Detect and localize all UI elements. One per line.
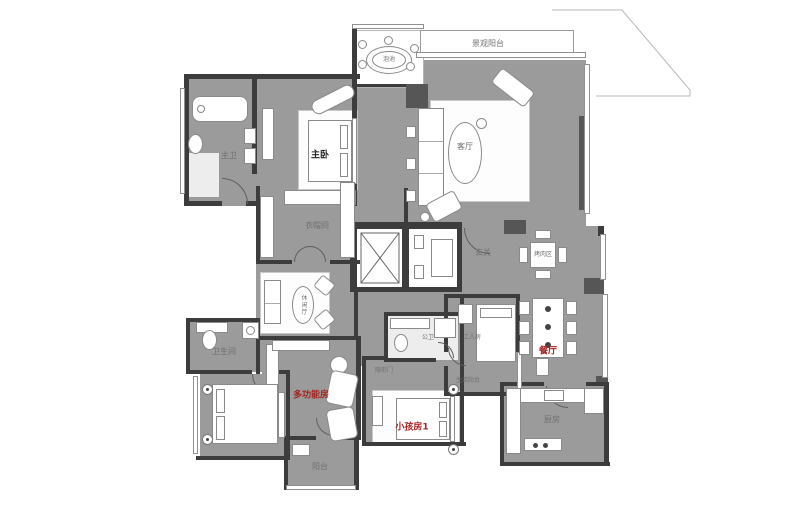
room-label-kitchen: 厨房	[544, 416, 560, 424]
shelf	[272, 340, 330, 351]
kitchen-island	[524, 438, 562, 451]
floor-plan: 景观阳台 泡池 客厅 主卧 主卫 衣帽间 玄关 烤肉区 餐厅 厨房 休闲厅 卫生…	[0, 0, 800, 512]
bbq-chair	[558, 247, 567, 263]
wall-segment	[384, 312, 464, 316]
room-label-guest-bath: 公卫	[422, 335, 434, 341]
wall-pier	[504, 220, 526, 234]
dining-chair	[566, 301, 577, 315]
window-living-top	[416, 52, 586, 58]
room-label-master-bath: 主卫	[221, 152, 237, 160]
wall-lamp	[448, 444, 459, 455]
window-bedroom2-left	[193, 376, 198, 454]
wall-segment	[402, 222, 407, 292]
dining-chair	[519, 301, 530, 315]
serving-cart	[536, 358, 549, 376]
stair-shaft	[407, 227, 459, 289]
label-hidden-door: 隐形门	[375, 368, 393, 374]
kids-desk	[372, 396, 383, 426]
wall-pier	[584, 278, 604, 294]
shower-guest	[434, 318, 456, 338]
wall-segment	[354, 436, 359, 490]
pillow	[216, 416, 225, 440]
room-label-utility-balcony: 生活阳台	[456, 378, 480, 384]
bbq-chair	[535, 270, 551, 279]
room-label-bbq: 烤肉区	[534, 252, 552, 258]
spa-stool	[384, 36, 393, 45]
wall-segment	[457, 222, 462, 292]
room-label-bathroom: 卫生间	[212, 348, 236, 356]
wall-lamp	[448, 384, 459, 395]
room-label-balcony: 阳台	[312, 463, 328, 471]
worker-cabinet	[458, 304, 473, 324]
side-table	[406, 190, 416, 202]
wall-segment	[184, 74, 360, 79]
room-label-dining: 餐厅	[539, 348, 557, 357]
nightstand	[244, 128, 256, 144]
bbq-chair	[519, 247, 528, 263]
cooktop-burner	[533, 443, 538, 448]
dining-chair	[566, 321, 577, 335]
bbq-chair	[535, 230, 551, 239]
side-ball-table	[476, 118, 487, 129]
bathtub	[192, 96, 248, 122]
wall-segment	[288, 436, 316, 440]
daybed	[325, 406, 358, 442]
elevator-shaft	[355, 227, 405, 289]
window-living-right	[584, 64, 590, 214]
window-dining-right	[602, 294, 608, 378]
wall-lamp	[202, 434, 213, 445]
room-label-master-bedroom: 主卧	[311, 152, 329, 161]
wall-segment	[188, 370, 252, 374]
bathtub-drain	[197, 105, 205, 113]
dining-chair	[519, 341, 530, 355]
bedroom2-bed	[212, 384, 278, 444]
wardrobe	[260, 196, 274, 258]
nightstand	[244, 148, 256, 164]
cooktop-burner	[543, 443, 548, 448]
shaft-panel	[431, 239, 453, 277]
wall-segment	[362, 356, 366, 446]
spa-stool	[410, 44, 419, 53]
toilet-master	[188, 134, 203, 154]
table-setting	[545, 324, 551, 330]
wall-segment	[604, 382, 609, 466]
room-label-living: 客厅	[457, 143, 473, 151]
wall-pier	[406, 84, 428, 108]
window-spa-top	[352, 24, 424, 29]
sofa	[418, 108, 444, 206]
washer	[242, 322, 259, 339]
room-label-kids-room-1: 小孩房1	[395, 424, 428, 433]
pillow	[439, 402, 447, 418]
toilet-guest	[394, 334, 408, 352]
spa-stool	[358, 60, 367, 69]
wall-segment	[184, 201, 222, 206]
side-table	[406, 158, 416, 170]
room-label-foyer: 玄关	[475, 249, 491, 257]
wall-segment	[384, 358, 436, 362]
wall-segment	[502, 462, 610, 466]
bench	[262, 108, 274, 160]
wall-segment	[258, 260, 292, 264]
wall-segment	[196, 456, 288, 460]
wall-segment	[186, 318, 190, 374]
wall-segment	[500, 382, 544, 386]
pillow	[340, 125, 348, 149]
window-balcony-bottom	[286, 485, 356, 490]
wall-segment	[356, 336, 361, 440]
leisure-sofa	[264, 280, 281, 324]
headboard	[352, 118, 357, 184]
kitchen-counter-left	[506, 388, 521, 454]
kitchen-tall-cabinet	[584, 388, 604, 414]
wall-lamp	[202, 384, 213, 395]
bench	[278, 392, 285, 438]
room-label-multi-room: 多功能房	[293, 392, 329, 401]
kids-headboard	[450, 396, 455, 442]
table-setting	[545, 306, 551, 312]
shaft-panel	[414, 265, 424, 279]
wall-segment	[366, 356, 388, 360]
elevator-x-icon	[357, 229, 403, 287]
vanity	[390, 318, 430, 329]
wall-segment	[330, 260, 360, 264]
wall-segment	[384, 312, 388, 362]
dining-chair	[519, 321, 530, 335]
pillow	[480, 308, 512, 318]
worker-bed	[476, 304, 516, 362]
coffee-table	[448, 122, 482, 184]
pillow	[216, 389, 225, 413]
wall-segment	[500, 382, 504, 466]
kids-bed	[396, 398, 450, 440]
wall-segment	[284, 436, 288, 490]
window-bbq-right	[600, 234, 606, 280]
side-table	[406, 126, 416, 138]
master-shower	[188, 152, 220, 198]
pillow	[439, 421, 447, 437]
pillow	[340, 153, 348, 177]
room-label-scenic-balcony: 景观阳台	[472, 40, 504, 48]
wardrobe	[340, 182, 355, 258]
spa-stool	[358, 40, 367, 49]
room-label-worker-room: 工人房	[463, 335, 481, 341]
balcony-cabinet	[292, 444, 310, 456]
room-label-spa: 泡池	[383, 57, 395, 63]
room-label-cloakroom: 衣帽间	[305, 222, 329, 230]
wall-segment	[354, 292, 358, 340]
wall-segment	[354, 84, 410, 87]
wall-segment	[444, 294, 520, 298]
window-masterbath-left	[180, 88, 185, 194]
kitchen-sink	[544, 390, 564, 401]
dining-chair	[566, 341, 577, 355]
shaft-panel	[414, 235, 424, 249]
floor-lamp	[420, 212, 430, 222]
room-label-leisure: 休闲厅	[300, 295, 306, 316]
spa-stool	[406, 62, 415, 71]
